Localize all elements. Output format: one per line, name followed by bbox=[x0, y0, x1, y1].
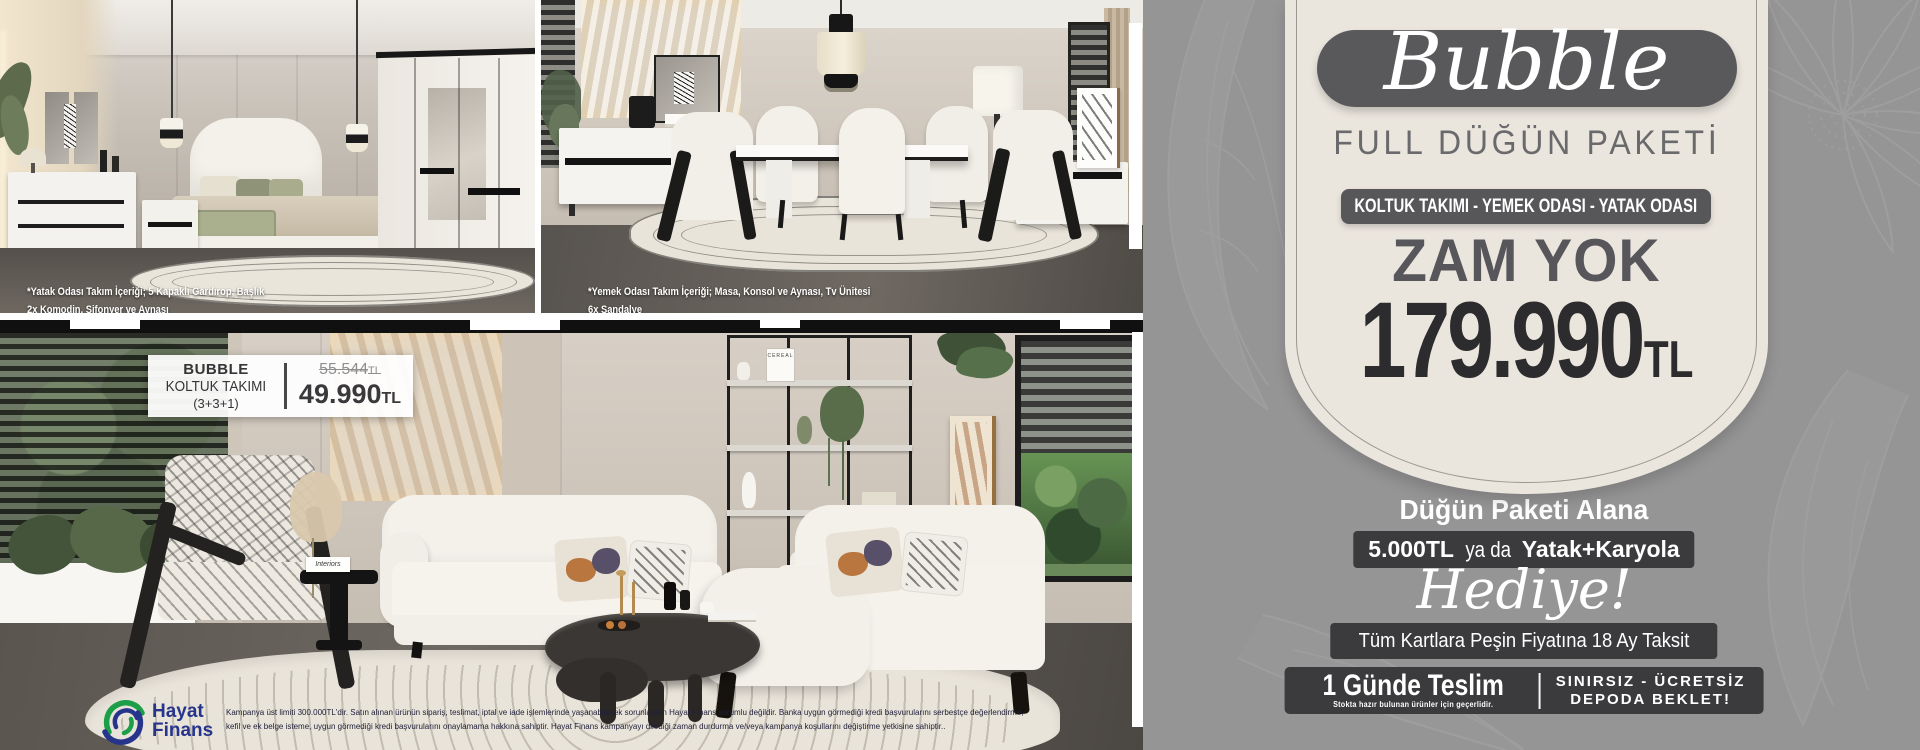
tray-fruit bbox=[606, 621, 614, 629]
dining-caption-line2: 6x Sandalye bbox=[588, 301, 642, 313]
shelf-magazine-frame: CEREAL bbox=[766, 348, 795, 382]
white-divider-strip bbox=[1129, 23, 1142, 249]
installment-bar: Tüm Kartlara Peşin Fiyatına 18 Ay Taksit bbox=[1330, 623, 1717, 659]
table-lamp-shade bbox=[973, 66, 1023, 116]
finance-brand-bottom: Finans bbox=[152, 721, 213, 740]
package-price: 179.990 TL bbox=[1338, 286, 1715, 394]
top-band-gap bbox=[70, 320, 140, 329]
top-dark-band bbox=[0, 320, 1143, 333]
table-vase bbox=[664, 582, 676, 610]
candle-decor bbox=[112, 156, 119, 172]
gift-intro-text: Düğün Paketi Alana bbox=[1400, 494, 1649, 526]
bedroom-caption-line2: 2x Komodin, Şifonyer ve Aynası bbox=[27, 301, 169, 313]
dining-photo: *Yemek Odası Takım İçeriği; Masa, Konsol… bbox=[541, 0, 1143, 313]
finance-brand-top: Hayat bbox=[152, 702, 213, 721]
pendant-lamp bbox=[346, 124, 368, 152]
table-book bbox=[708, 612, 756, 622]
cushion-bw-pattern bbox=[632, 546, 686, 596]
sofa1-leg bbox=[411, 642, 423, 659]
pendant-cap bbox=[829, 14, 853, 34]
dresser-handle bbox=[18, 200, 124, 204]
dresser bbox=[8, 172, 136, 252]
bed-pillow bbox=[200, 176, 240, 198]
table-pedestal bbox=[904, 160, 930, 218]
price-tag-old-currency: TL bbox=[368, 365, 381, 377]
installment-text: Tüm Kartlara Peşin Fiyatına 18 Ay Taksit bbox=[1359, 630, 1690, 653]
vanity-mirror bbox=[74, 92, 98, 164]
price-tag-old-price: 55.544 bbox=[319, 361, 368, 378]
pampas-plume bbox=[290, 472, 342, 542]
cushion-blob-purple bbox=[864, 540, 892, 566]
sideboard-leg bbox=[569, 204, 575, 216]
sofa-price-tag: BUBBLE KOLTUK TAKIMI (3+3+1) 55.544TL 49… bbox=[148, 355, 413, 417]
living-photo: CEREAL Inte bbox=[0, 320, 1143, 750]
price-tag-divider bbox=[284, 363, 287, 409]
wardrobe-handle bbox=[420, 168, 454, 174]
delivery-title: 1 Günde Teslim bbox=[1322, 672, 1503, 700]
hayat-finans-logo-icon bbox=[100, 699, 147, 746]
package-price-currency: TL bbox=[1644, 334, 1694, 386]
leaning-art-lines bbox=[1082, 94, 1112, 160]
campaign-disclaimer: Kampanya üst limiti 300.000TL'dir. Satın… bbox=[226, 706, 1086, 734]
badge-subtitle-text: FULL DÜĞÜN PAKETİ bbox=[1333, 124, 1720, 163]
pendant-drum bbox=[817, 32, 865, 76]
candle-top bbox=[616, 570, 626, 576]
hayat-finans-brand: Hayat Finans bbox=[152, 702, 213, 740]
gift-intro: Düğün Paketi Alana bbox=[1283, 494, 1765, 526]
cushion-blob-purple bbox=[592, 548, 620, 574]
badge-subtitle: FULL DÜĞÜN PAKETİ bbox=[1285, 124, 1768, 163]
shelf-plant bbox=[797, 416, 812, 444]
candlestick bbox=[620, 575, 623, 615]
pendant-ring bbox=[824, 74, 858, 92]
price-tag-product: KOLTUK TAKIMI bbox=[166, 378, 267, 395]
shelf-sculpture bbox=[742, 472, 756, 508]
nightstand-handle bbox=[148, 222, 192, 227]
bedroom-caption-line1: *Yatak Odası Takım İçeriği; 5 Kapaklı Ga… bbox=[27, 283, 264, 301]
disclaimer-line1: Kampanya üst limiti 300.000TL'dir. Satın… bbox=[226, 706, 1086, 720]
dining-caption: *Yemek Odası Takım İçeriği; Masa, Konsol… bbox=[588, 283, 920, 313]
pendant-cord bbox=[356, 0, 358, 126]
price-tag-left: BUBBLE KOLTUK TAKIMI (3+3+1) bbox=[158, 361, 274, 412]
storage-line1: SINIRSIZ - ÜCRETSİZ bbox=[1556, 673, 1746, 691]
wardrobe-handle bbox=[468, 188, 520, 195]
shelf-magazine-title: CEREAL bbox=[767, 353, 793, 359]
white-divider-strip bbox=[1132, 332, 1143, 727]
pendant-lamp bbox=[160, 118, 183, 148]
cushion-bw-pattern bbox=[906, 537, 963, 590]
top-band-gap bbox=[760, 320, 800, 328]
dresser-handle bbox=[18, 224, 124, 228]
table-lamp-base bbox=[31, 163, 35, 173]
side-table-magazine: Interiors bbox=[306, 557, 350, 572]
tray-fruit bbox=[618, 621, 626, 629]
price-tag-right: 55.544TL 49.990TL bbox=[297, 360, 403, 412]
delivery-column: 1 Günde Teslim Stokta hazır bulunan ürün… bbox=[1303, 672, 1524, 709]
wardrobe-seam bbox=[414, 58, 416, 248]
disclaimer-line2: kefil ve ek belge isteme, uygun görmediğ… bbox=[226, 720, 1086, 734]
brand-script-title: Bubble bbox=[1285, 22, 1768, 102]
delivery-note: Stokta hazır bulunan ürünler için geçerl… bbox=[1314, 700, 1513, 709]
side-magazine-title: Interiors bbox=[315, 561, 340, 568]
plant-vine bbox=[842, 438, 844, 500]
price-tag-new-currency: TL bbox=[382, 390, 402, 407]
coffee-machine bbox=[629, 96, 655, 128]
offer-badge: Bubble FULL DÜĞÜN PAKETİ KOLTUK TAKIMI -… bbox=[1285, 0, 1768, 494]
dining-caption-line1: *Yemek Odası Takım İçeriği; Masa, Konsol… bbox=[588, 283, 870, 301]
dining-chair-front bbox=[839, 108, 905, 214]
pendant-cord bbox=[171, 0, 173, 120]
storage-line2: DEPODA BEKLET! bbox=[1556, 691, 1746, 709]
price-tag-configuration: (3+3+1) bbox=[158, 395, 274, 412]
candle-decor bbox=[100, 150, 107, 172]
package-price-amount: 179.990 bbox=[1360, 286, 1643, 394]
top-band-gap bbox=[470, 320, 560, 330]
price-tag-new-price: 49.990 bbox=[299, 379, 382, 409]
wardrobe-mirror bbox=[428, 88, 486, 220]
categories-bar: KOLTUK TAKIMI - YEMEK ODASI - YATAK ODAS… bbox=[1341, 189, 1711, 224]
top-band-gap bbox=[1060, 320, 1110, 329]
side-table-base bbox=[316, 640, 362, 650]
table-vase bbox=[680, 590, 690, 610]
gift-word: Hediye! bbox=[1283, 560, 1765, 619]
bedroom-photo: *Yatak Odası Takım İçeriği; 5 Kapaklı Ga… bbox=[0, 0, 535, 313]
plant-vine bbox=[828, 438, 830, 486]
flyer-canvas: *Yatak Odası Takım İçeriği; 5 Kapaklı Ga… bbox=[0, 0, 1920, 750]
right-window-blinds bbox=[1021, 341, 1137, 453]
wardrobe-seam bbox=[498, 58, 500, 248]
categories-text: KOLTUK TAKIMI - YEMEK ODASI - YATAK ODAS… bbox=[1355, 196, 1698, 218]
bar-divider bbox=[1539, 673, 1541, 709]
side-table-top bbox=[300, 570, 378, 584]
bedroom-caption: *Yatak Odası Takım İçeriği; 5 Kapaklı Ga… bbox=[27, 283, 306, 313]
mirror-art bbox=[674, 72, 694, 104]
shelf-vase bbox=[737, 362, 750, 380]
wardrobe-seam bbox=[458, 58, 460, 248]
storage-column: SINIRSIZ - ÜCRETSİZ DEPODA BEKLET! bbox=[1556, 673, 1746, 709]
shelf-board bbox=[727, 445, 912, 451]
delivery-storage-bar: 1 Günde Teslim Stokta hazır bulunan ürün… bbox=[1285, 667, 1764, 714]
wall-art bbox=[64, 104, 76, 148]
shelf-board bbox=[727, 380, 912, 386]
side-table-column bbox=[330, 584, 348, 642]
candlestick bbox=[632, 582, 635, 615]
price-tag-brand: BUBBLE bbox=[158, 361, 274, 378]
